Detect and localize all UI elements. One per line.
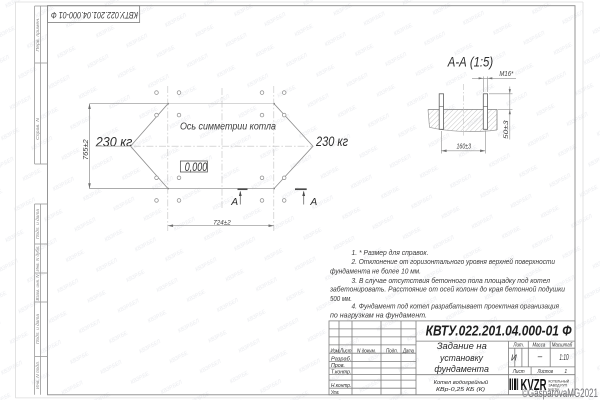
svg-text:Ось симметрии котла: Ось симметрии котла [180,121,276,132]
svg-text:Масса: Масса [533,343,546,349]
svg-text:Задание на: Задание на [437,341,487,351]
svg-text:50±3: 50±3 [503,120,510,139]
svg-text:1. * Размер для справок.: 1. * Размер для справок. [352,249,429,257]
svg-text:Изм.Лист: Изм.Лист [331,349,352,355]
svg-text:фундамента не более 10 мм.: фундамента не более 10 мм. [330,268,421,276]
svg-text:–: – [537,352,543,361]
svg-text:230 кг: 230 кг [95,133,132,149]
svg-text:Справ. N: Справ. N [35,117,40,140]
svg-text:Подп. и дата: Подп. и дата [35,314,40,344]
svg-text:Лит.: Лит. [512,343,524,349]
svg-text:0,000: 0,000 [185,160,208,174]
svg-text:М16*: М16* [499,69,514,78]
svg-text:по нагрузкам на фундамент.: по нагрузкам на фундамент. [330,312,427,320]
svg-text:А: А [230,197,238,208]
svg-text:724±2: 724±2 [213,220,231,227]
svg-text:Н.контр.: Н.контр. [331,383,351,389]
svg-text:2. Отклонение от горизонтально: 2. Отклонение от горизонтального уровня … [351,258,556,266]
svg-text:4. Фундамент под котел разраба: 4. Фундамент под котел разрабатывает про… [352,303,560,311]
svg-text:А: А [309,197,317,208]
svg-text:фундамента: фундамента [434,364,489,374]
svg-text:©GasparovaMG2021: ©GasparovaMG2021 [522,388,598,400]
svg-text:1:10: 1:10 [559,353,569,362]
svg-text:КВТУ.022.201.04.000-01 Ф: КВТУ.022.201.04.000-01 Ф [426,323,572,340]
svg-text:230 кг: 230 кг [315,133,348,149]
svg-text:Подп. и дата: Подп. и дата [35,209,40,239]
svg-text:N докум.: N докум. [357,349,376,355]
svg-text:Масштаб: Масштаб [552,343,573,349]
svg-text:Пров.: Пров. [331,363,345,369]
svg-text:Лист: Лист [512,369,525,375]
svg-text:Дата: Дата [402,349,414,355]
svg-text:Взам. инв. N: Взам. инв. N [35,274,40,301]
svg-text:500 мм.: 500 мм. [330,296,352,303]
svg-text:установку: установку [439,353,484,363]
svg-text:Утв.: Утв. [330,390,339,396]
svg-text:160±3: 160±3 [457,142,472,151]
svg-text:КВр-0,25 КБ (К): КВр-0,25 КБ (К) [436,387,485,393]
svg-text:КВТУ.022.201.04.000-01 Ф: КВТУ.022.201.04.000-01 Ф [51,10,138,20]
svg-text:А-А (1:5): А-А (1:5) [447,54,493,69]
svg-text:Котел водогрейный: Котел водогрейный [434,379,489,386]
svg-text:Подп.: Подп. [386,349,398,355]
svg-text:И: И [511,354,517,363]
svg-text:765±2: 765±2 [83,139,90,160]
svg-text:Разраб.: Разраб. [331,356,351,362]
svg-text:забетонировать. Расстояние от: забетонировать. Расстояние от осей колон… [329,285,565,293]
svg-text:Перв. примен.: Перв. примен. [35,18,40,52]
svg-text:1: 1 [564,369,567,375]
svg-text:Листов: Листов [537,369,554,375]
svg-text:3. В случае отсутствия бетонно: 3. В случае отсутствия бетонного пола пл… [352,277,551,285]
svg-text:Инв. N подл.: Инв. N подл. [35,361,40,389]
svg-text:Инв. N дубл.: Инв. N дубл. [35,246,40,272]
svg-text:Т.контр.: Т.контр. [331,370,351,376]
